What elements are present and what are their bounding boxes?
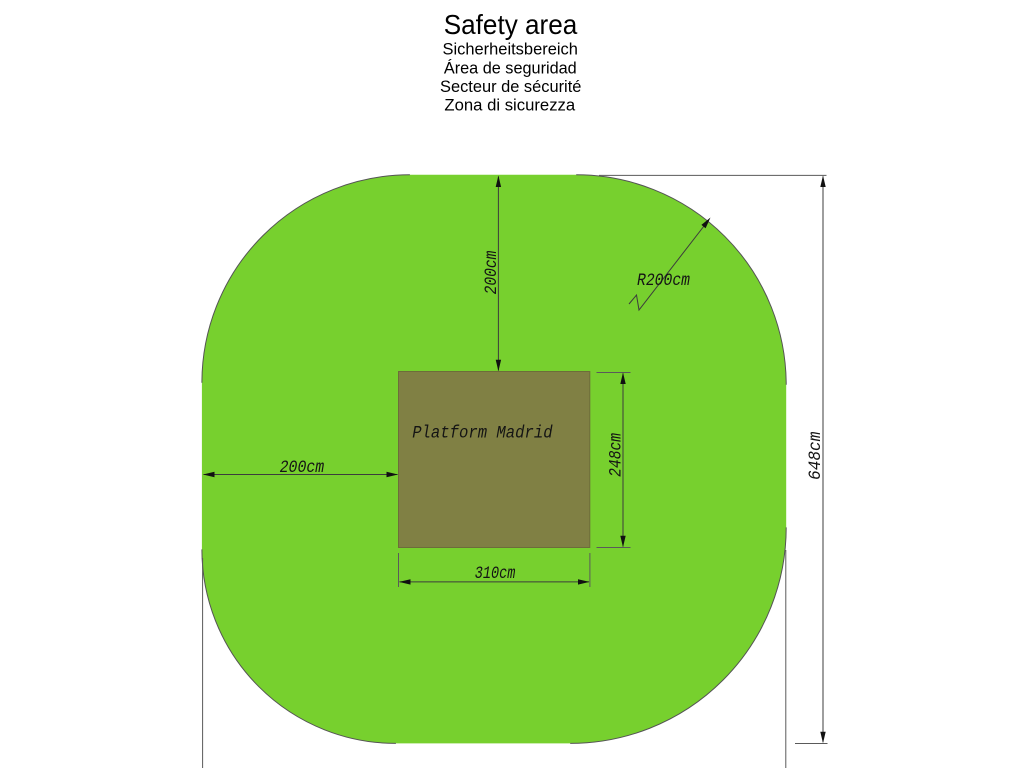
svg-text:200cm: 200cm	[482, 250, 502, 294]
svg-text:248cm: 248cm	[607, 432, 627, 476]
svg-text:Platform Madrid: Platform Madrid	[412, 424, 553, 444]
svg-text:Secteur de sécurité: Secteur de sécurité	[440, 78, 581, 96]
svg-text:Área de seguridad: Área de seguridad	[444, 58, 577, 77]
svg-text:Sicherheitsbereich: Sicherheitsbereich	[443, 40, 578, 58]
svg-text:Safety area: Safety area	[444, 9, 578, 40]
svg-text:R200cm: R200cm	[637, 271, 690, 291]
svg-text:310cm: 310cm	[475, 564, 516, 584]
svg-text:648cm: 648cm	[806, 431, 826, 480]
svg-text:Zona di sicurezza: Zona di sicurezza	[444, 96, 576, 114]
svg-text:200cm: 200cm	[280, 458, 325, 478]
